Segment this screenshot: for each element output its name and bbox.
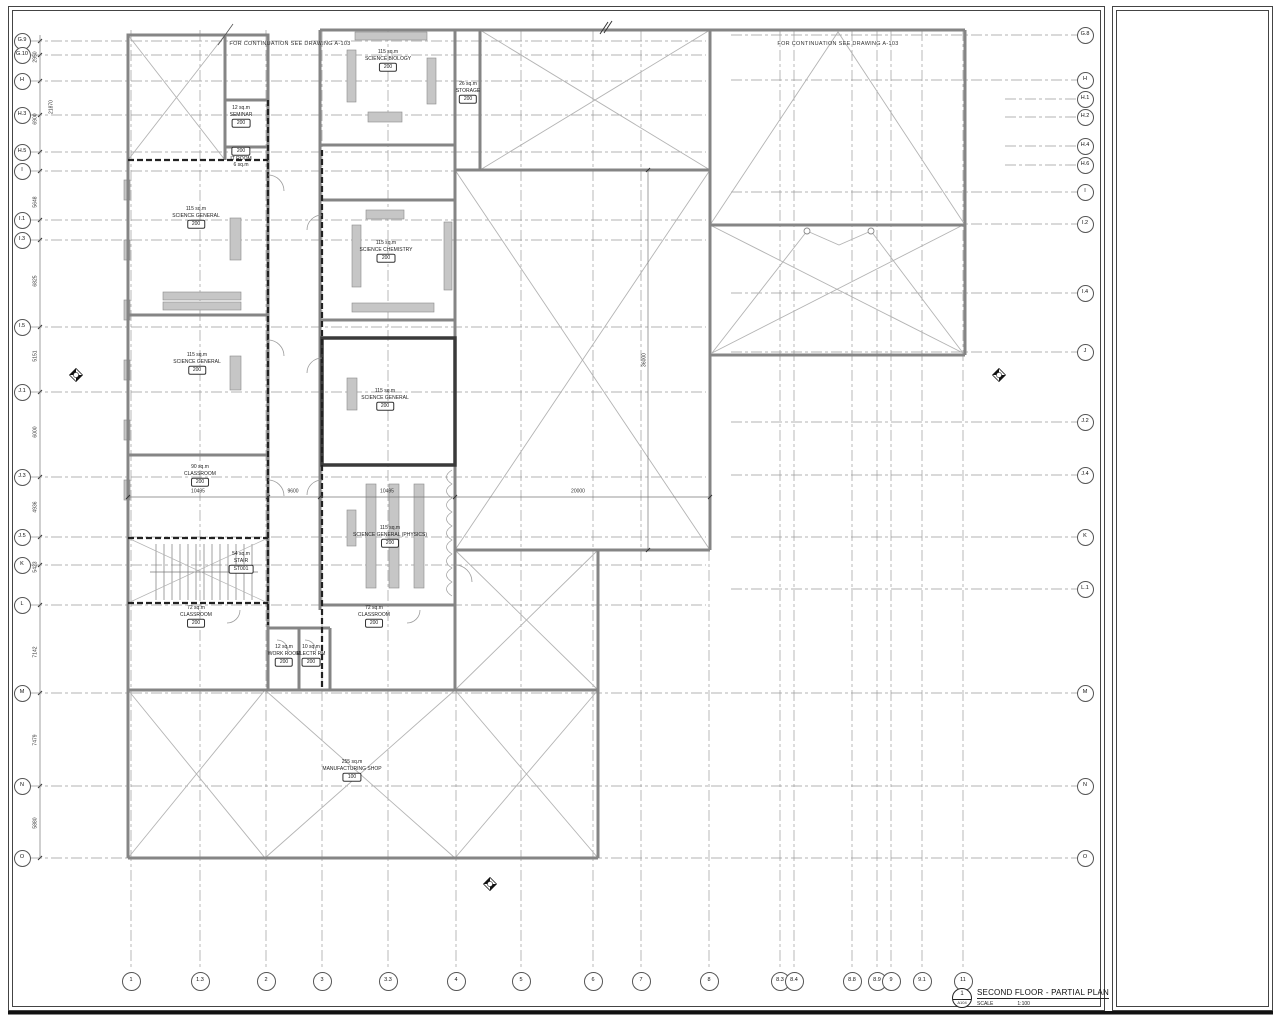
casework-benches (124, 32, 452, 588)
grid-bubble-H.2: H.2 (1077, 109, 1094, 126)
grid-bubble-M: M (1077, 685, 1094, 702)
grid-bubble-H.6: H.6 (1077, 157, 1094, 174)
room-area: 6 sq.m (230, 162, 251, 169)
grid-bubble-J.4: J.4 (1077, 467, 1094, 484)
room-tag: 100 (343, 773, 361, 782)
grid-bubble-1.3: 1.3 (191, 972, 210, 991)
title-text-group: SECOND FLOOR - PARTIAL PLAN SCALE 1:100 (977, 988, 1109, 1007)
break-line-symbol (600, 21, 612, 34)
grid-bubble-H.3: H.3 (14, 107, 31, 124)
dimension-label: 6000 (34, 426, 39, 437)
grid-bubble-9: 9 (882, 972, 901, 991)
room-label-science-general: 115 sq.mSCIENCE GENERAL200 (172, 206, 220, 229)
room-tag-row: 200 (297, 657, 326, 667)
room-tag-row: 200 (180, 618, 212, 628)
room-tag-row: 200 (173, 365, 221, 375)
grid-bubble-H.5: H.5 (14, 144, 31, 161)
room-tag-row: 200 (360, 253, 413, 263)
room-tag: ST001 (229, 565, 254, 574)
grid-bubble-6: 6 (584, 972, 603, 991)
grid-bubble-8.8: 8.8 (843, 972, 862, 991)
room-tag: 200 (459, 95, 477, 104)
grid-bubble-N: N (14, 778, 31, 795)
room-tag-row: ST001 (229, 564, 254, 574)
room-tag-row: 200 (456, 94, 480, 104)
grid-bubble-1: 1 (122, 972, 141, 991)
architectural-sheet: FOR CONTINUATION SEE DRAWING A-103 FOR C… (0, 0, 1280, 1017)
grid-bubble-7: 7 (632, 972, 651, 991)
room-area: 26 sq.m (456, 81, 480, 88)
dimension-label: 20000 (571, 490, 585, 495)
dimension-label: 6825 (34, 275, 39, 286)
sheet-ref: A104 (953, 1000, 971, 1006)
grid-bubble-9.1: 9.1 (913, 972, 932, 991)
room-area: 54 sq.m (229, 551, 254, 558)
grid-bubble-I: I (14, 163, 31, 180)
grid-bubble-G.8: G.8 (1077, 27, 1094, 44)
grid-bubble-O: O (14, 850, 31, 867)
room-label-science-general-physics-: 115 sq.mSCIENCE GENERAL (PHYSICS)200 (353, 525, 427, 548)
grid-bubble-J.3: J.3 (14, 469, 31, 486)
grid-bubble-H: H (14, 73, 31, 90)
grid-bubble-3: 3 (313, 972, 332, 991)
continuation-note-right: FOR CONTINUATION SEE DRAWING A-103 (777, 41, 898, 47)
elevation-marker-west (70, 369, 83, 382)
grid-bubble-K: K (1077, 529, 1094, 546)
grid-bubble-8.4: 8.4 (785, 972, 804, 991)
dimension-label: 10495 (191, 490, 205, 495)
grid-bubble-J.1: J.1 (14, 384, 31, 401)
drawing-title-block: 1 A104 SECOND FLOOR - PARTIAL PLAN SCALE… (952, 988, 1109, 1008)
grid-bubble-G.10: G.10 (14, 47, 31, 64)
grid-bubble-I.1: I.1 (14, 212, 31, 229)
room-label-storage: 26 sq.mSTORAGE200 (456, 81, 480, 104)
dimension-label: 10495 (380, 490, 394, 495)
grid-bubble-K: K (14, 557, 31, 574)
room-tag-row: 200 (365, 62, 411, 72)
dimension-label: 5151 (34, 350, 39, 361)
room-tag: 200 (232, 119, 250, 128)
room-tag-row: 200 (361, 401, 409, 411)
room-tag: 200 (188, 366, 206, 375)
dimension-label: 6900 (34, 113, 39, 124)
room-tag-row: 200 (358, 618, 390, 628)
dimension-label: 21870 (50, 100, 55, 114)
grid-bubble-I.2: I.2 (1077, 216, 1094, 233)
room-tag-row: 200 (230, 118, 253, 128)
roof-bracing-lines (128, 30, 965, 858)
drawing-title: SECOND FLOOR - PARTIAL PLAN (977, 988, 1109, 999)
door-swings (227, 175, 472, 651)
room-tag: 200 (191, 478, 209, 487)
room-label-stair: 54 sq.mSTAIRST001 (229, 551, 254, 574)
room-label-classroom: 72 sq.mCLASSROOM200 (358, 605, 390, 628)
grid-bubble-J.2: J.2 (1077, 414, 1094, 431)
room-label-work-room: 12 sq.mWORK ROOM200 (268, 644, 301, 667)
room-tag: 200 (377, 254, 395, 263)
scale-label: SCALE (977, 1001, 993, 1007)
room-tag: 200 (187, 220, 205, 229)
room-tag-row: 200 (230, 146, 251, 156)
elevation-marker-east (993, 369, 1006, 382)
dimension-label: 7142 (34, 646, 39, 657)
scale-value: 1:100 (1017, 1001, 1030, 1007)
elevation-marker-south (484, 878, 497, 891)
grid-bubble-J: J (1077, 344, 1094, 361)
room-label-science-general: 115 sq.mSCIENCE GENERAL200 (173, 352, 221, 375)
room-tag: 200 (365, 619, 383, 628)
room-label-science-chemistry: 115 sq.mSCIENCE CHEMISTRY200 (360, 240, 413, 263)
scalloped-casework (447, 470, 453, 596)
room-tag: 200 (302, 658, 320, 667)
grid-bubble-5: 5 (512, 972, 531, 991)
grid-bubble-I.4: I.4 (1077, 285, 1094, 302)
grid-bubble-L.1: L.1 (1077, 581, 1094, 598)
dimension-label: 4936 (34, 501, 39, 512)
grid-bubble-I.3: I.3 (14, 232, 31, 249)
grid-bubble-4: 4 (447, 972, 466, 991)
room-tag-row: 200 (172, 219, 220, 229)
room-tag-row: 200 (268, 657, 301, 667)
dimension-label: 5648 (34, 196, 39, 207)
room-tag: 200 (376, 402, 394, 411)
continuation-note-left: FOR CONTINUATION SEE DRAWING A-103 (229, 41, 350, 47)
dashed-fire-walls (128, 100, 322, 690)
grid-bubble-8: 8 (700, 972, 719, 991)
grid-bubble-O: O (1077, 850, 1094, 867)
room-tag-row: 100 (322, 772, 381, 782)
room-label-science-biology: 115 sq.mSCIENCE BIOLOGY200 (365, 49, 411, 72)
grid-bubble-N: N (1077, 778, 1094, 795)
room-label-manufacturing-shop: 255 sq.mMANUFACTURING SHOP100 (322, 759, 381, 782)
room-tag: 200 (381, 539, 399, 548)
dimension-label: 36000 (643, 353, 648, 367)
detail-number: 1 (953, 990, 971, 1000)
grid-bubble-2: 2 (257, 972, 276, 991)
wall-linework (128, 30, 965, 858)
room-label-seminar: 12 sq.mSEMINAR200 (230, 105, 253, 128)
grid-bubble-I: I (1077, 184, 1094, 201)
grid-bubble-L: L (14, 597, 31, 614)
dimension-label: 2950 (34, 51, 39, 62)
room-label-electr-rm: 10 sq.mELECTR RM200 (297, 644, 326, 667)
dimension-label: 9600 (287, 490, 298, 495)
room-area: 12 sq.m (230, 105, 253, 112)
room-label-science-general: 115 sq.mSCIENCE GENERAL200 (361, 388, 409, 411)
grid-bubble-H.1: H.1 (1077, 91, 1094, 108)
dimension-label: 5880 (34, 817, 39, 828)
detail-callout: 1 A104 (952, 988, 972, 1008)
room-label-classroom: 72 sq.mCLASSROOM200 (180, 605, 212, 628)
grid-bubble-H.4: H.4 (1077, 138, 1094, 155)
dimension-label: 7479 (34, 734, 39, 745)
grid-bubble-I.5: I.5 (14, 319, 31, 336)
room-tag: 200 (187, 619, 205, 628)
room-tag-row: 200 (353, 538, 427, 548)
dimension-label: 5423 (34, 561, 39, 572)
grid-bubble-3.3: 3.3 (379, 972, 398, 991)
drawing-scale: SCALE 1:100 (977, 1001, 1109, 1007)
grid-bubble-M: M (14, 685, 31, 702)
room-label-classroom: 90 sq.mCLASSROOM200 (184, 464, 216, 487)
room-tag-row: 200 (184, 477, 216, 487)
dimension-lines (40, 35, 712, 858)
grid-bubble-J.5: J.5 (14, 529, 31, 546)
grid-bubble-H: H (1077, 72, 1094, 89)
room-tag: 200 (379, 63, 397, 72)
room-label-it-room: 200IT ROOM6 sq.m (230, 146, 251, 169)
room-tag: 200 (232, 147, 250, 156)
room-tag: 200 (275, 658, 293, 667)
